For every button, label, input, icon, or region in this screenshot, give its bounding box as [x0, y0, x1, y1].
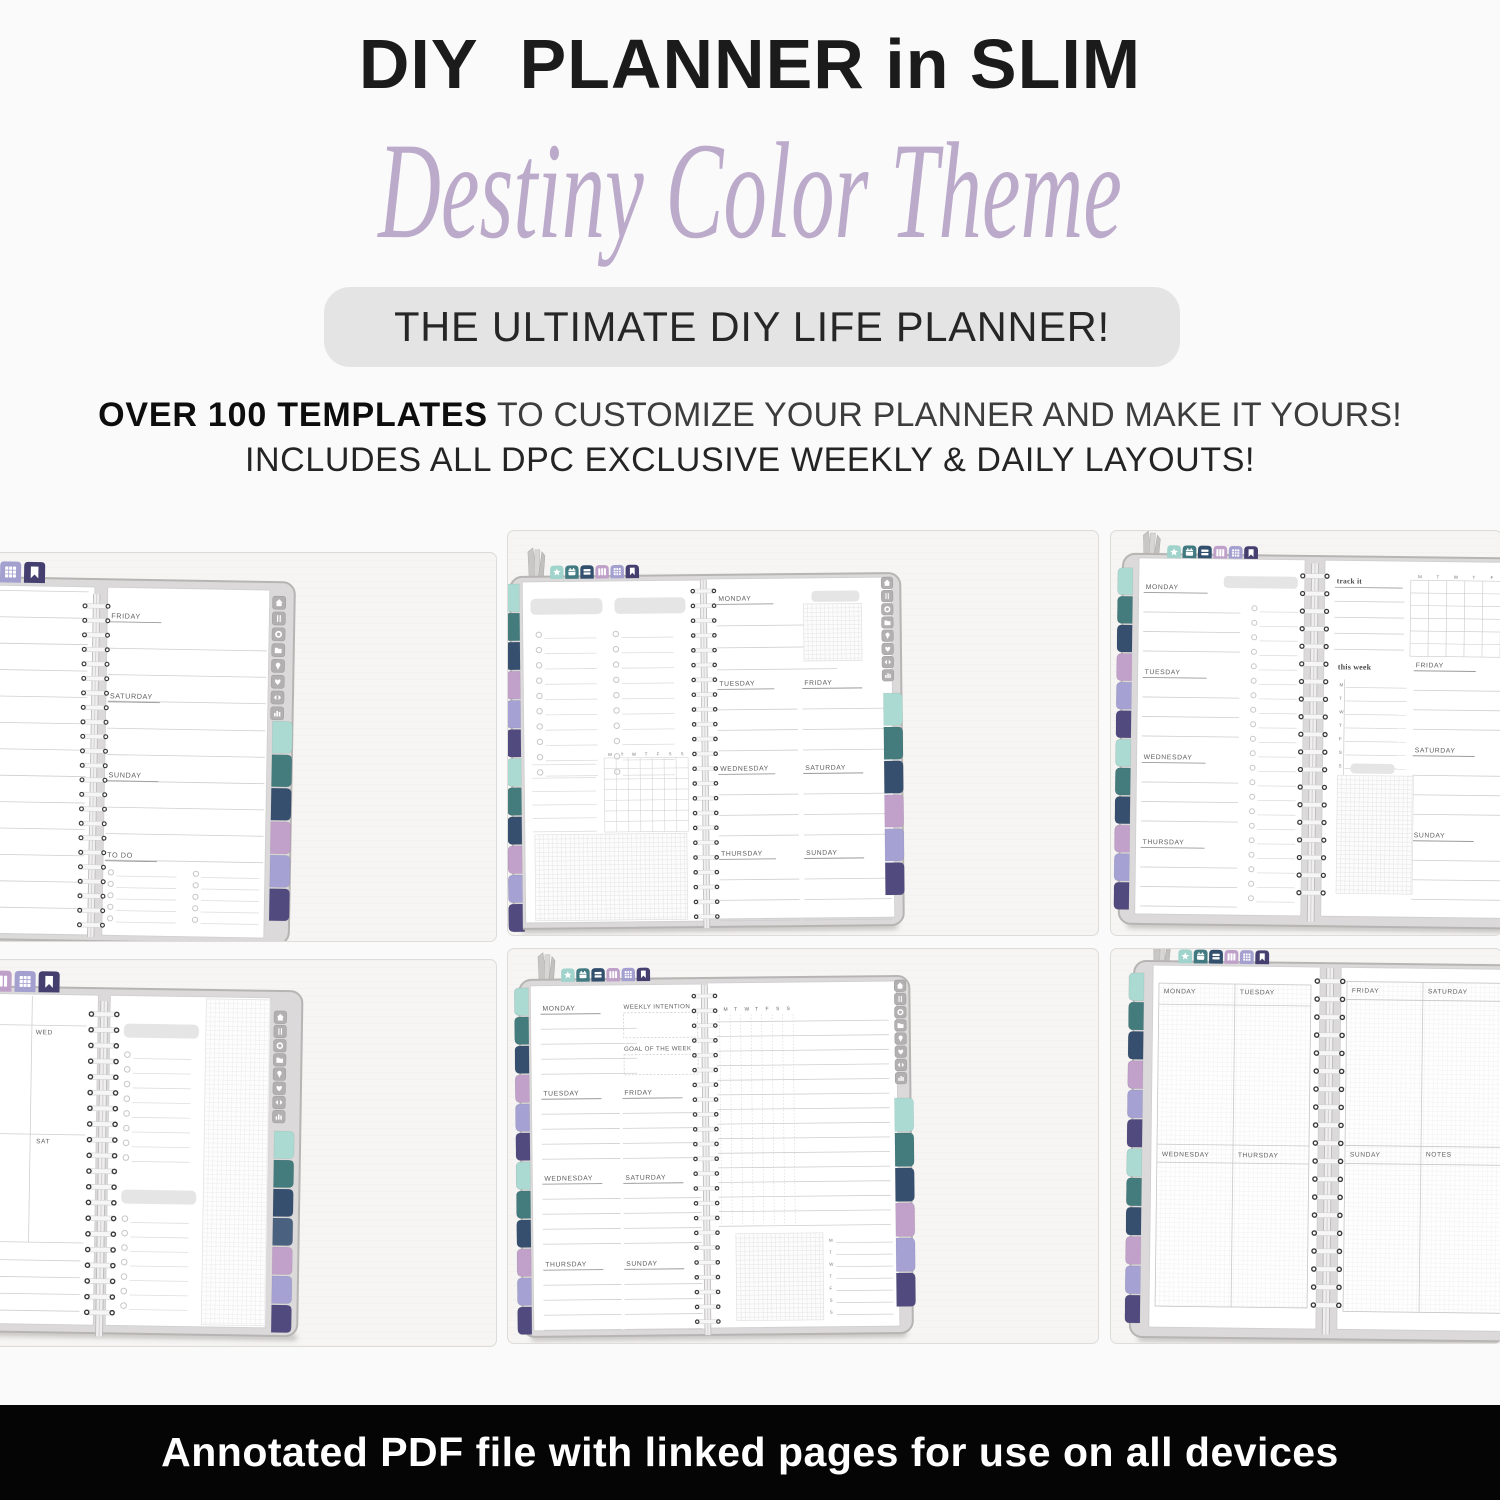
svg-text:FRIDAY: FRIDAY [111, 611, 141, 621]
svg-text:SATURDAY: SATURDAY [1428, 988, 1468, 995]
svg-text:M: M [1340, 682, 1344, 687]
svg-text:F: F [657, 752, 660, 757]
svg-text:WED: WED [36, 1029, 53, 1036]
svg-text:M: M [724, 1007, 728, 1013]
svg-text:T: T [829, 1250, 832, 1255]
svg-text:FRIDAY: FRIDAY [804, 680, 832, 687]
svg-text:F: F [829, 1286, 832, 1291]
svg-text:S: S [681, 751, 684, 756]
svg-text:F: F [1490, 575, 1493, 580]
svg-text:SATURDAY: SATURDAY [110, 691, 153, 701]
svg-text:track it: track it [1337, 576, 1363, 585]
svg-text:TUESDAY: TUESDAY [543, 1090, 579, 1097]
svg-text:T: T [645, 752, 648, 757]
svg-text:S: S [830, 1298, 833, 1303]
svg-text:F: F [766, 1006, 769, 1012]
svg-text:MONDAY: MONDAY [1164, 988, 1196, 995]
svg-text:THURSDAY: THURSDAY [1143, 839, 1185, 847]
svg-text:THURSDAY: THURSDAY [545, 1261, 587, 1268]
svg-text:WEDNESDAY: WEDNESDAY [720, 765, 769, 773]
svg-text:SUNDAY: SUNDAY [109, 770, 142, 780]
svg-text:T: T [1436, 575, 1439, 580]
svg-text:NOTES: NOTES [1426, 1151, 1452, 1158]
svg-text:THURSDAY: THURSDAY [1238, 1152, 1279, 1159]
svg-text:S: S [1339, 750, 1342, 755]
svg-text:SUNDAY: SUNDAY [1414, 832, 1446, 839]
svg-text:WEEKLY INTENTION: WEEKLY INTENTION [623, 1003, 690, 1011]
svg-text:MONDAY: MONDAY [1146, 584, 1179, 591]
svg-text:SUNDAY: SUNDAY [626, 1261, 657, 1268]
svg-text:MONDAY: MONDAY [542, 1005, 575, 1012]
svg-text:WEDNESDAY: WEDNESDAY [1162, 1151, 1210, 1159]
svg-text:S: S [1339, 763, 1342, 768]
svg-text:TUESDAY: TUESDAY [1240, 989, 1275, 996]
svg-text:WEDNESDAY: WEDNESDAY [544, 1175, 593, 1183]
svg-text:T: T [755, 1006, 758, 1012]
svg-text:T: T [1339, 696, 1342, 701]
svg-text:SATURDAY: SATURDAY [1415, 747, 1456, 754]
svg-text:THURSDAY: THURSDAY [721, 850, 763, 857]
svg-text:T: T [1472, 575, 1475, 580]
svg-text:MONDAY: MONDAY [718, 596, 751, 603]
svg-text:GOAL OF THE WEEK: GOAL OF THE WEEK [624, 1045, 692, 1053]
svg-text:F: F [1339, 736, 1342, 741]
svg-text:T: T [829, 1274, 832, 1279]
svg-text:TO DO: TO DO [107, 850, 133, 859]
svg-text:SUNDAY: SUNDAY [806, 850, 837, 857]
svg-text:SATURDAY: SATURDAY [805, 765, 846, 772]
svg-text:S: S [830, 1310, 833, 1315]
svg-text:M: M [608, 752, 612, 757]
svg-text:M: M [1418, 574, 1422, 579]
svg-text:TUESDAY: TUESDAY [719, 681, 755, 688]
svg-text:FRIDAY: FRIDAY [1416, 662, 1444, 669]
svg-text:SATURDAY: SATURDAY [625, 1174, 666, 1181]
svg-text:S: S [669, 751, 672, 756]
svg-text:T: T [1339, 723, 1342, 728]
svg-text:SUNDAY: SUNDAY [1350, 1151, 1381, 1158]
svg-text:W: W [745, 1007, 750, 1013]
svg-text:FRIDAY: FRIDAY [624, 1090, 652, 1097]
svg-text:TUESDAY: TUESDAY [1145, 669, 1181, 676]
svg-text:T: T [734, 1007, 737, 1013]
svg-text:WEDNESDAY: WEDNESDAY [1144, 754, 1193, 762]
svg-text:FRIDAY: FRIDAY [1352, 987, 1379, 994]
svg-text:this week: this week [1338, 662, 1372, 671]
svg-text:T: T [621, 752, 624, 757]
svg-text:SAT: SAT [36, 1138, 50, 1145]
svg-text:M: M [829, 1238, 833, 1243]
